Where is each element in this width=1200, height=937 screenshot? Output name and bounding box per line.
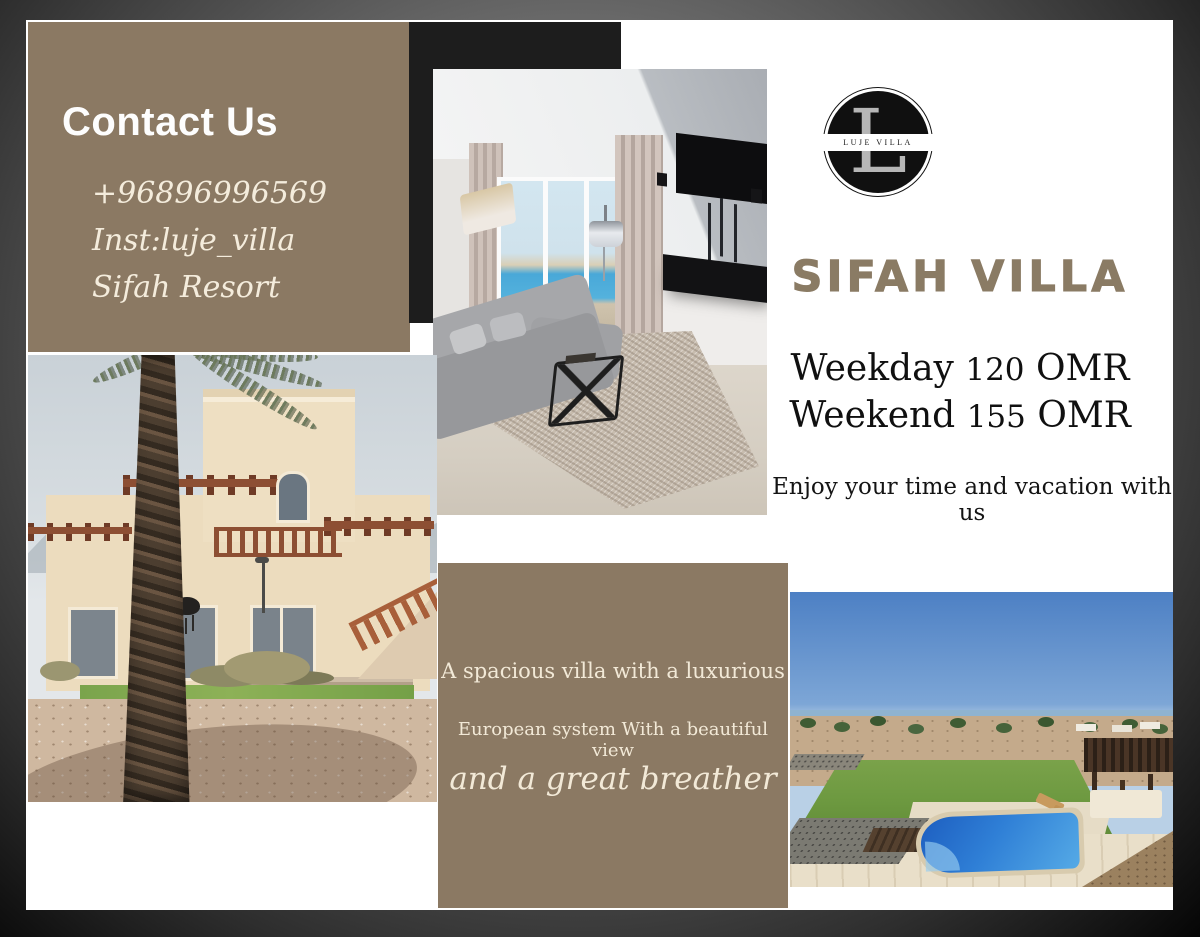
rate-weekend-amount: 155 (967, 399, 1026, 435)
rate-weekend: Weekend 155 OMR (780, 393, 1140, 440)
arched-window (276, 471, 310, 523)
coffee-table (548, 355, 624, 427)
flyer-page: Contact Us +96896996569 Inst:luje_villa … (0, 0, 1200, 937)
logo-band: LUJE VILLA (820, 134, 936, 151)
contact-block: Contact Us +96896996569 Inst:luje_villa … (28, 22, 410, 352)
description-line-1: A spacious villa with a luxurious (438, 659, 788, 683)
logo-band-text: LUJE VILLA (843, 138, 913, 147)
dry-bush (40, 661, 80, 681)
page-title: SIFAH VILLA (780, 252, 1140, 302)
luje-villa-logo: L LUJE VILLA (823, 87, 933, 197)
pool-garden-photo (790, 592, 1173, 887)
contact-heading: Contact Us (62, 100, 278, 145)
pool-rim (915, 807, 1085, 879)
balcony-railing (214, 527, 342, 557)
ceiling-lamp (589, 221, 623, 247)
description-line-3: and a great breather (438, 761, 788, 797)
curtain-right (615, 135, 663, 359)
rate-weekday-amount: 120 (965, 352, 1024, 388)
villa-exterior-photo (28, 355, 437, 802)
sandy-ground (28, 699, 437, 802)
low-wall (1090, 790, 1162, 818)
dry-bush (224, 651, 310, 685)
rates: Weekday 120 OMR Weekend 155 OMR (780, 346, 1140, 440)
speaker-right (751, 188, 762, 203)
pergola-beam (28, 523, 132, 541)
tagline: Enjoy your time and vacation with us (772, 474, 1172, 526)
contact-instagram: Inst:luje_villa (92, 217, 327, 264)
description-line-2: European system With a beautiful view (438, 719, 788, 761)
distant-buildings (1076, 724, 1096, 731)
contact-phone: +96896996569 (92, 170, 327, 217)
garden-pergola (1084, 738, 1173, 772)
speaker-left (657, 172, 667, 186)
rate-weekend-label: Weekend (789, 395, 955, 436)
description-block: A spacious villa with a luxurious Europe… (438, 563, 788, 908)
contact-location: Sifah Resort (92, 264, 327, 311)
garden-lamp (262, 561, 265, 613)
living-room-photo (433, 69, 767, 515)
rate-weekend-currency: OMR (1037, 395, 1130, 436)
contact-details: +96896996569 Inst:luje_villa Sifah Resor… (92, 170, 327, 311)
distant-palms (800, 718, 816, 728)
swimming-pool (920, 812, 1080, 873)
rate-weekday: Weekday 120 OMR (780, 346, 1140, 393)
rate-weekday-label: Weekday (791, 348, 954, 389)
rate-weekday-currency: OMR (1036, 348, 1129, 389)
gravel-wall (790, 754, 865, 770)
